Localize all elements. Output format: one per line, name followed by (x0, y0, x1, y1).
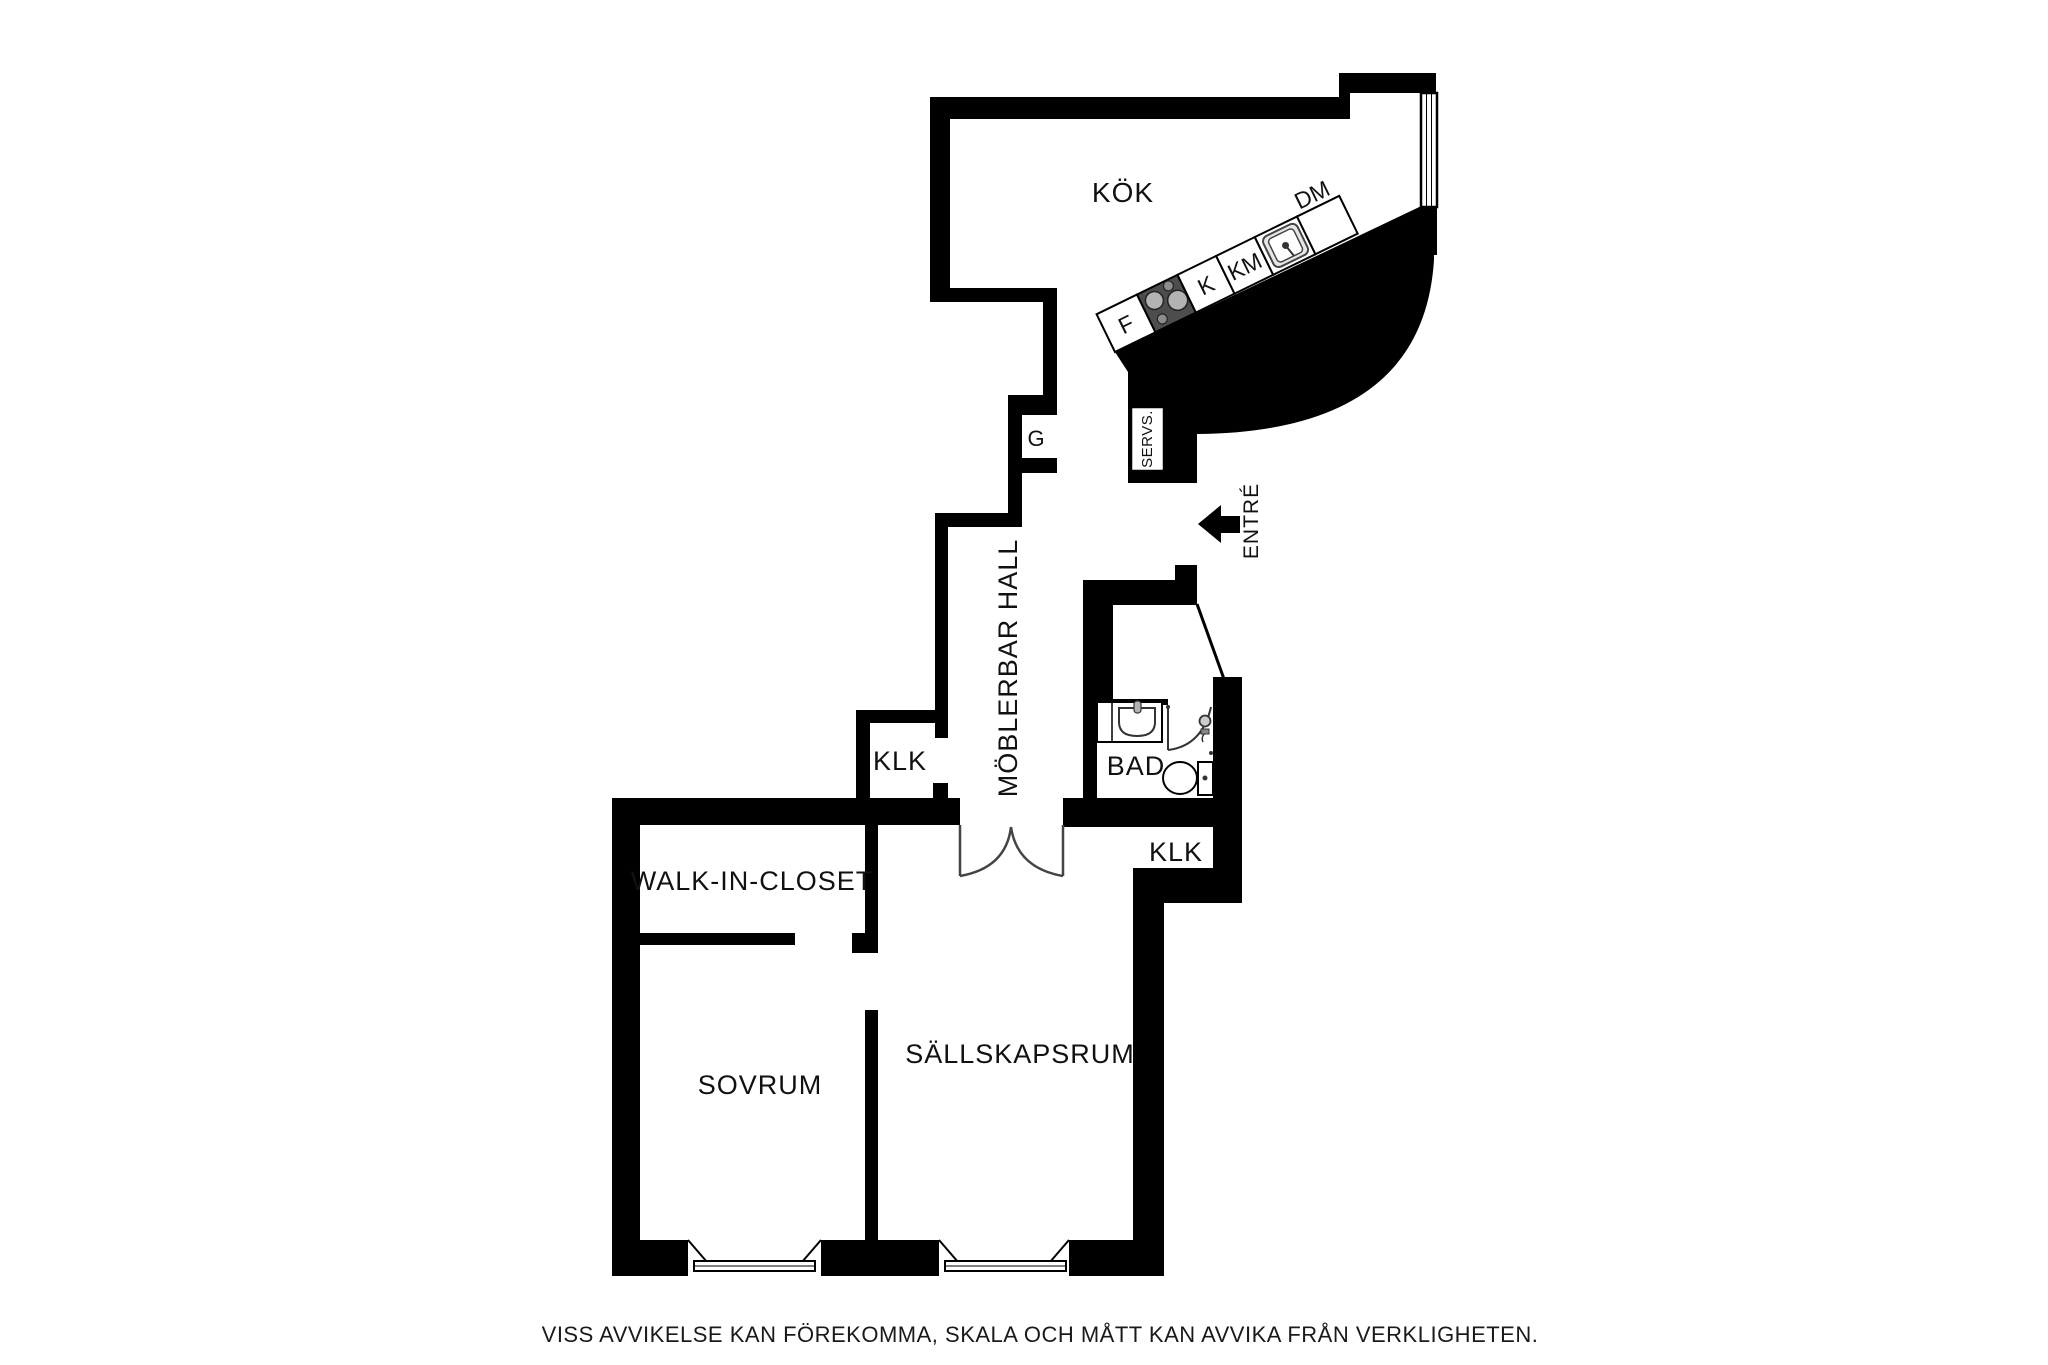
room-label-klk-upper: KLK (873, 746, 927, 776)
wall (1339, 73, 1436, 93)
wall (933, 783, 948, 798)
room-label-klk-lower: KLK (1149, 837, 1203, 867)
room-label-walk-in-closet: WALK-IN-CLOSET (631, 866, 874, 896)
wall (865, 1010, 878, 1240)
wall (1097, 593, 1113, 705)
livingroom-window (939, 1240, 1069, 1276)
wall (1421, 205, 1437, 255)
wall (1083, 580, 1097, 810)
wall (640, 933, 795, 945)
wall (930, 288, 1057, 302)
room-label-bad: BAD (1107, 751, 1166, 781)
wall (935, 513, 948, 738)
wall (612, 798, 960, 825)
room-label-hall: MÖBLERBAR HALL (993, 539, 1023, 798)
shower-icon (1200, 716, 1211, 743)
wall (1213, 677, 1242, 903)
room-label-sovrum: SOVRUM (698, 1070, 823, 1100)
wall (1175, 565, 1197, 605)
wall-outline (1197, 604, 1224, 679)
servs-label: SERVS. (1139, 410, 1156, 468)
servs-shaft: SERVS. (1131, 407, 1164, 471)
room-label-sallskapsrum: SÄLLSKAPSRUM (905, 1039, 1135, 1069)
wall (930, 97, 1350, 119)
bedroom-window (688, 1240, 821, 1276)
floorplan-svg: SERVS. F K KM (0, 0, 2048, 1365)
room-label-garderob: G (1027, 426, 1044, 451)
wall (1133, 868, 1164, 1240)
room-label-entre: ENTRÉ (1240, 483, 1263, 559)
room-label-kok: KÖK (1092, 177, 1154, 208)
wall (1339, 73, 1350, 119)
toilet-icon (1163, 762, 1213, 795)
wall (1162, 888, 1242, 903)
wall (935, 513, 1022, 527)
entry-arrow-icon (1198, 505, 1240, 543)
disclaimer-text: VISS AVVIKELSE KAN FÖREKOMMA, SKALA OCH … (520, 1322, 1560, 1348)
wall (930, 97, 950, 302)
kitchen-window (1421, 93, 1437, 207)
bathroom-sink-icon (1097, 701, 1162, 742)
wall (1008, 458, 1057, 473)
floorplan-page: SERVS. F K KM (0, 0, 2048, 1365)
double-door-arcs (960, 825, 1063, 876)
wall (856, 710, 870, 810)
